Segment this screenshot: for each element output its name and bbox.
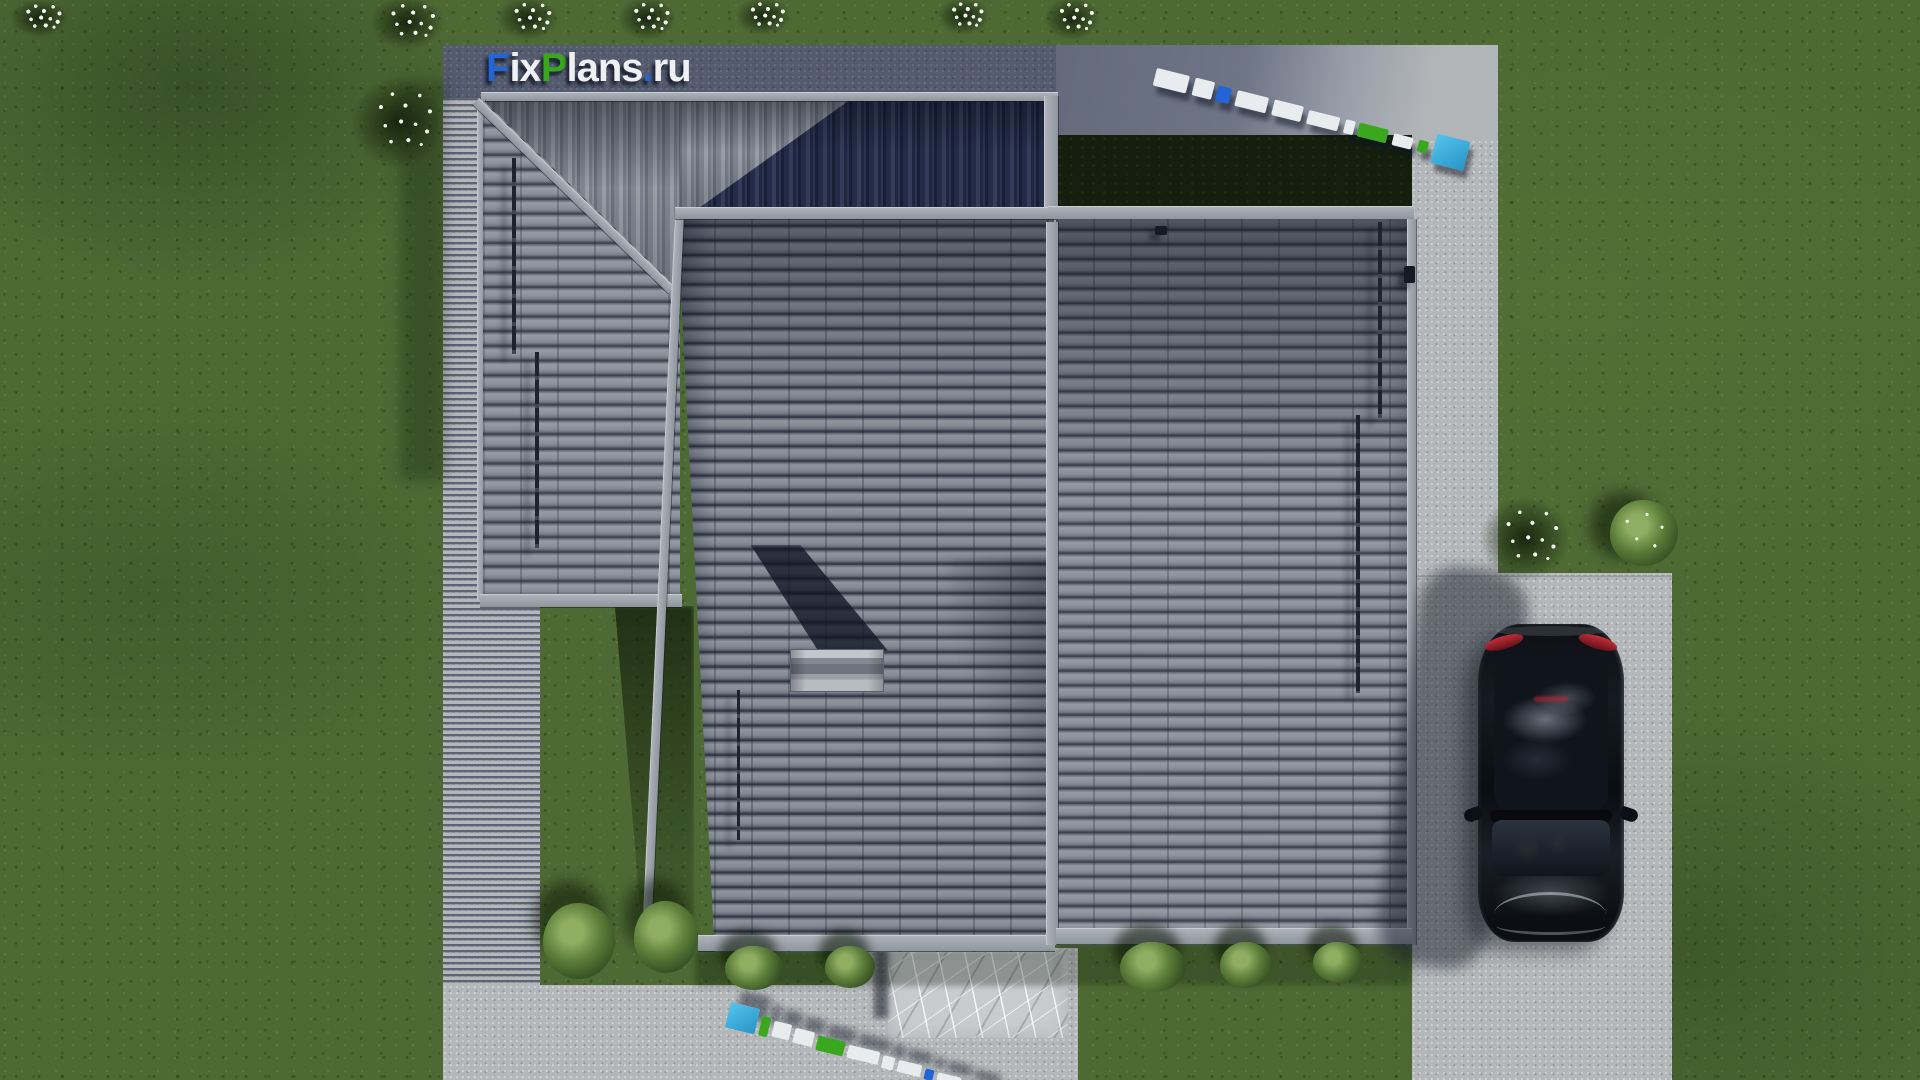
letter-block: [896, 1060, 922, 1077]
main-roof-ridge-shadow: [950, 558, 1054, 824]
letter-block: [1343, 119, 1356, 135]
letter-block-green: [1356, 123, 1388, 144]
flower-cluster-top-2: [508, 0, 556, 34]
letter-block-green: [1417, 140, 1430, 154]
logo-segment: .: [643, 46, 653, 90]
car: [1478, 624, 1624, 942]
snow-guard-pipe-left-lower: [535, 352, 539, 548]
flower-cluster-top-4: [745, 0, 789, 30]
logo-segment: P: [541, 46, 567, 90]
letter-block: [1234, 90, 1269, 113]
letter-block: [1153, 68, 1190, 94]
letter-block-blue: [1215, 85, 1232, 104]
car-bumper-highlight: [1496, 916, 1606, 935]
roof-north-ridge-divider: [1044, 96, 1058, 222]
letter-block: [936, 1072, 962, 1080]
logo-segment: ru: [653, 46, 691, 90]
right-roof-ridge: [1048, 206, 1414, 219]
skylight: [790, 649, 884, 692]
aerial-house-render: FixPlans.ru: [0, 0, 1920, 1080]
letter-block: [771, 1021, 792, 1041]
flower-cluster-top-3: [628, 0, 674, 34]
roof-top-edge-bar: [481, 92, 1058, 101]
bush-south-2: [825, 946, 875, 988]
bush-courtyard-2: [634, 901, 698, 973]
letter-block-green: [758, 1016, 771, 1038]
bush-south-5: [1313, 942, 1363, 982]
snow-guard-pipe-main: [737, 690, 740, 840]
bush-south-1: [725, 946, 783, 990]
letter-block: [881, 1055, 896, 1070]
snow-guard-pipe-left-upper: [512, 158, 516, 354]
flowering-bush-left: [368, 84, 440, 156]
flower-cluster-top-corner: [20, 2, 66, 32]
letter-block: [846, 1045, 880, 1065]
car-windshield: [1492, 820, 1610, 876]
logo-cube-cyan: [725, 1002, 760, 1034]
bush-south-4: [1220, 942, 1272, 988]
right-roof-eave: [1056, 928, 1412, 944]
letter-block-blue: [923, 1068, 934, 1080]
snow-guard-pipe-right-lower: [1356, 415, 1360, 693]
letter-block-green: [815, 1035, 846, 1056]
secondary-roof-eave: [480, 594, 682, 607]
fixplans-logo: FixPlans.ru: [486, 48, 691, 88]
letter-block: [1306, 110, 1340, 131]
letter-block: [1391, 133, 1413, 149]
letter-block: [1191, 78, 1215, 100]
car-brake-light: [1534, 696, 1568, 702]
flowering-shrub-driveway: [1496, 503, 1566, 569]
letter-block: [1271, 99, 1304, 122]
shrub-driveway-green: [1610, 500, 1678, 566]
snow-guard-pipe-right-upper: [1378, 222, 1382, 418]
roof-valley-bar: [1046, 222, 1058, 945]
bush-south-3: [1120, 942, 1186, 992]
letter-block: [792, 1028, 815, 1047]
flower-cluster-top-5: [947, 0, 987, 30]
logo-segment: ix: [509, 46, 540, 90]
logo-segment: F: [486, 46, 509, 90]
bush-courtyard-1: [543, 903, 615, 979]
roof-vent-ridge: [1155, 226, 1167, 235]
roof-vent-right-edge: [1404, 266, 1415, 283]
flower-cluster-top-1: [383, 0, 441, 42]
main-roof-ridge: [675, 207, 1048, 219]
car-glass-roof: [1494, 658, 1608, 812]
flower-cluster-top-6: [1054, 0, 1098, 34]
logo-segment: lans: [566, 46, 642, 90]
